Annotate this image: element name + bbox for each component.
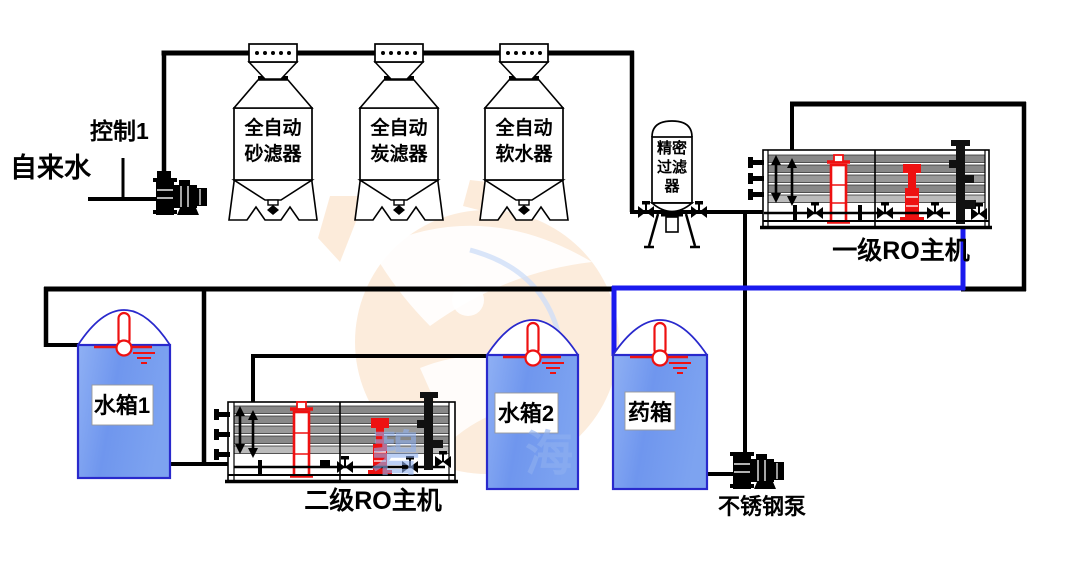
watermark-text: 碧海 <box>372 428 678 481</box>
control-label: 控制1 <box>90 118 149 144</box>
sand-filter-label-1: 全自动 <box>243 116 301 139</box>
stage1-ro-unit <box>748 140 992 228</box>
stainless-steel-pump <box>730 452 784 489</box>
ro2-cartridge-filter <box>290 402 313 476</box>
sand-filter-label-2: 砂滤器 <box>244 143 302 165</box>
precision-filter-label-1: 精密 <box>657 139 687 157</box>
feed-water-label: 自来水 <box>10 152 92 183</box>
stainless-pump-label: 不锈钢泵 <box>718 494 806 519</box>
precision-filter-label-3: 器 <box>663 178 680 195</box>
diagram-canvas: 碧海 控制1 自来水 全自动 砂滤器 全自动 炭滤器 全自动 软水器 精密 过滤… <box>0 0 1078 577</box>
carbon-filter-label-2: 炭滤器 <box>370 143 428 165</box>
softener-label-1: 全自动 <box>494 116 552 139</box>
dosing-tank-label: 药箱 <box>628 400 672 425</box>
process-flow-diagram: 碧海 控制1 自来水 全自动 砂滤器 全自动 炭滤器 全自动 软水器 精密 过滤… <box>0 0 1078 577</box>
ro2-inlet-nozzles <box>214 409 230 460</box>
tank2-label: 水箱2 <box>498 401 554 426</box>
softener-label-2: 软水器 <box>495 142 553 165</box>
ro1-inlet-nozzles <box>748 157 764 200</box>
carbon-filter-label-1: 全自动 <box>369 116 427 139</box>
tank1-label: 水箱1 <box>94 393 150 418</box>
precision-filter-label-2: 过滤 <box>657 158 687 176</box>
ro1-label: 一级RO主机 <box>832 236 970 265</box>
ro2-label: 二级RO主机 <box>304 486 442 515</box>
raw-water-pump <box>153 178 207 215</box>
